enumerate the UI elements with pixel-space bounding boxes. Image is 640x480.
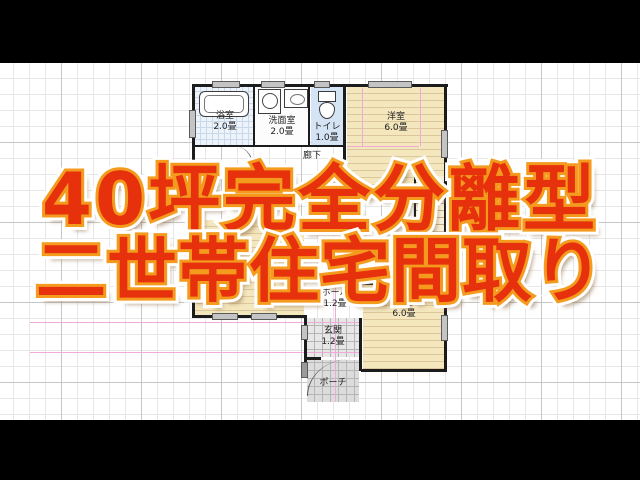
wall-entrance-east (359, 318, 362, 371)
label-entrance: 玄関1.2畳 (308, 326, 358, 348)
washing-machine-icon (258, 89, 281, 114)
porch-door (301, 362, 308, 378)
wall-south-west (192, 315, 307, 318)
label-bathroom: 浴室2.0畳 (200, 111, 250, 133)
window (212, 81, 240, 88)
module-line (30, 322, 360, 323)
toilet-tank-icon (318, 91, 336, 102)
washbasin-icon (284, 89, 308, 108)
module-line (347, 146, 419, 147)
label-bedroom-top: 洋室6.0畳 (370, 112, 422, 134)
label-porch: ポーチ (308, 378, 358, 389)
title-line-1: 40坪完全分離型 40坪完全分離型 40坪完全分離型 (0, 163, 640, 235)
window (261, 81, 285, 88)
title-line-2-text: 二世帯住宅間取り (36, 230, 604, 312)
window (212, 313, 238, 320)
window (251, 313, 277, 320)
window (441, 130, 448, 158)
module-line (30, 352, 360, 353)
label-toilet: トイレ1.0畳 (309, 122, 345, 144)
letterbox-bar-top (0, 0, 640, 63)
wall-wetrooms-south (194, 145, 344, 147)
label-washroom: 洗面室2.0畳 (256, 116, 308, 138)
wall-south-east (361, 369, 447, 372)
letterbox-bar-bottom (0, 420, 640, 480)
wall-entrance-south-stub (304, 357, 321, 360)
title-line-2: 二世帯住宅間取り 二世帯住宅間取り 二世帯住宅間取り (0, 236, 640, 306)
module-line (362, 88, 363, 146)
title-line-1-text: 40坪完全分離型 (42, 157, 598, 241)
window (301, 325, 308, 340)
window (189, 110, 196, 138)
window (441, 315, 448, 341)
window (314, 81, 330, 88)
wall-bath-washroom (253, 87, 255, 147)
video-thumbnail-frame: 浴室2.0畳 洗面室2.0畳 トイレ1.0畳 洋室6.0畳 廊下 クロゼット1.… (0, 0, 640, 480)
window (368, 81, 412, 88)
